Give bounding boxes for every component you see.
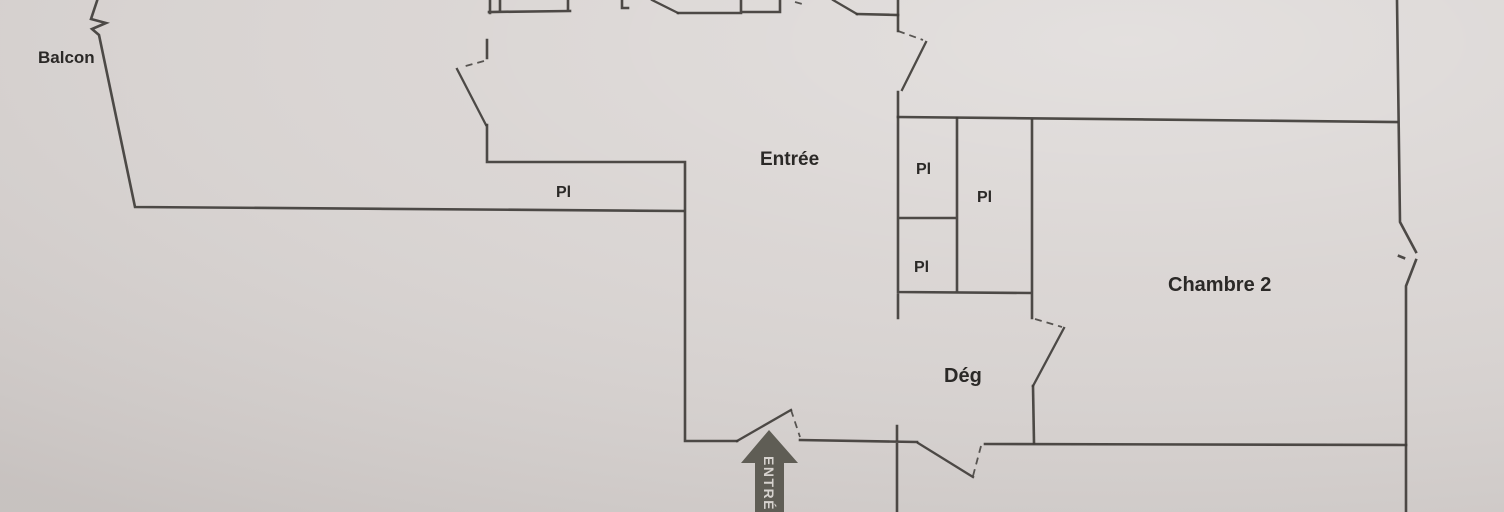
- hallway-label: Dég: [944, 365, 982, 387]
- balcony-label: Balcon: [38, 48, 95, 67]
- bedroom2-label: Chambre 2: [1168, 274, 1271, 296]
- entry-arrow-label: ENTRÉE: [761, 456, 777, 512]
- closet-right-label: Pl: [977, 189, 992, 206]
- photo-vignette: [0, 0, 1504, 512]
- floor-plan-svg: Balcon Entrée Pl Pl Pl Pl Dég Chambre 2 …: [0, 0, 1504, 512]
- closet-entrance-label: Pl: [556, 184, 571, 201]
- closet-lower-label: Pl: [914, 259, 929, 276]
- floor-plan: Balcon Entrée Pl Pl Pl Pl Dég Chambre 2 …: [0, 0, 1504, 512]
- hallway-right-wall: [1033, 386, 1034, 443]
- entrance-label: Entrée: [760, 149, 819, 170]
- closet-upper-label: Pl: [916, 161, 931, 178]
